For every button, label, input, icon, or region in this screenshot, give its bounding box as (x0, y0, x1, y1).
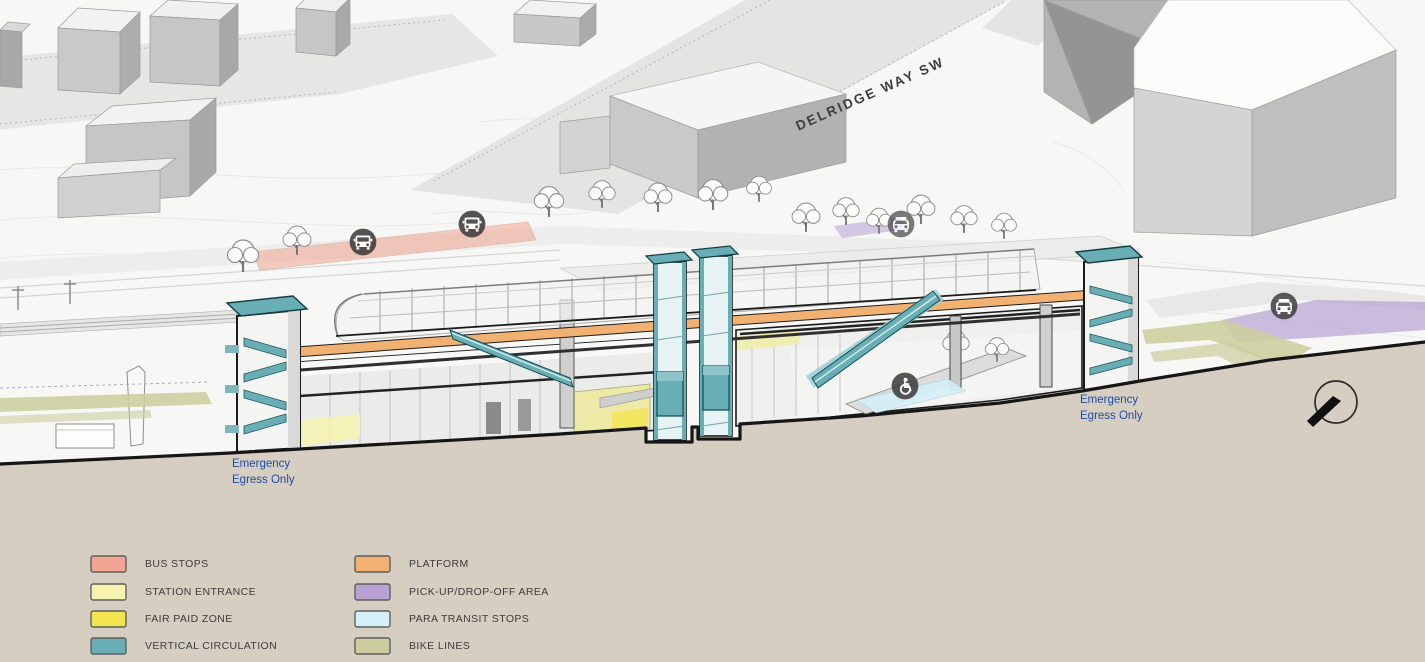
legend-item: PICK-UP/DROP-OFF AREA (354, 583, 549, 601)
emergency-egress-line1: Emergency (232, 456, 295, 472)
hall-door (486, 402, 501, 434)
legend-swatch (91, 556, 126, 572)
bus-icon (459, 211, 486, 238)
right-stair-tower (1076, 246, 1142, 390)
hall-door (518, 399, 531, 431)
legend-swatch (355, 584, 390, 600)
stair-landing (225, 345, 239, 353)
legend-swatch (355, 611, 390, 627)
legend-label: PARA TRANSIT STOPS (409, 613, 529, 625)
stair-landing (225, 425, 239, 433)
bus-icon (350, 229, 377, 256)
legend-label: PLATFORM (409, 558, 469, 570)
legend-label: STATION ENTRANCE (145, 586, 256, 598)
stair-landing (225, 385, 239, 393)
legend-item: PLATFORM (354, 555, 469, 573)
emergency-egress-line2: Egress Only (232, 472, 295, 488)
legend-swatch (91, 638, 126, 654)
car-icon (1271, 293, 1298, 320)
legend-label: VERTICAL CIRCULATION (145, 640, 277, 652)
legend-item: FAIR PAID ZONE (90, 610, 233, 628)
legend-swatch (91, 584, 126, 600)
building (1134, 0, 1396, 236)
legend-label: PICK-UP/DROP-OFF AREA (409, 586, 549, 598)
legend-label: BUS STOPS (145, 558, 209, 570)
building (58, 8, 140, 94)
wheelchair-icon (892, 373, 919, 400)
car-icon (888, 211, 915, 238)
building (514, 0, 596, 46)
legend-item: BIKE LINES (354, 637, 470, 655)
guideway-column (950, 316, 961, 390)
legend-item: STATION ENTRANCE (90, 583, 256, 601)
emergency-egress-line2: Egress Only (1080, 408, 1143, 424)
station-rendering: DELRIDGE WAY SW (0, 0, 1425, 662)
emergency-egress-line1: Emergency (1080, 392, 1143, 408)
legend-item: BUS STOPS (90, 555, 209, 573)
building (296, 0, 350, 56)
emergency-egress-label-right: Emergency Egress Only (1080, 392, 1143, 424)
building (150, 0, 238, 86)
rendering-canvas: DELRIDGE WAY SW (0, 0, 1425, 662)
legend-swatch (91, 611, 126, 627)
legend-item: PARA TRANSIT STOPS (354, 610, 529, 628)
legend-label: FAIR PAID ZONE (145, 613, 233, 625)
building (58, 158, 176, 218)
legend-swatch (355, 638, 390, 654)
emergency-egress-label-left: Emergency Egress Only (232, 456, 295, 488)
shelter-building (56, 424, 114, 448)
legend-item: VERTICAL CIRCULATION (90, 637, 277, 655)
legend-swatch (355, 556, 390, 572)
left-stair-tower (225, 296, 307, 452)
legend-label: BIKE LINES (409, 640, 470, 652)
